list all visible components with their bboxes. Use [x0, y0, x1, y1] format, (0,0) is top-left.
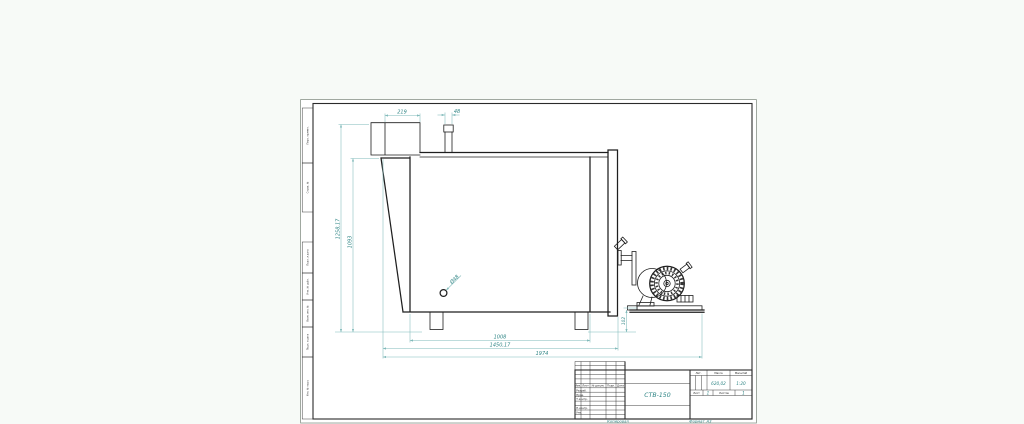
dim-nozzle-width: 48 [454, 109, 460, 115]
dim-overall-height: 1258,17 [335, 218, 341, 239]
tb-mass-value: 620,02 [711, 381, 726, 386]
tb-podp: Подп. [607, 384, 615, 388]
tb-utv: Утв. [576, 411, 582, 415]
tb-tkontr: Т.контр. [576, 397, 587, 401]
tb-list: Лист [582, 384, 589, 388]
footer-format-value: А3 [705, 418, 712, 423]
margin-label: Взам. инв. № [306, 305, 309, 322]
margin-label: Инв. № подл. [306, 380, 309, 397]
tb-scale-value: 1:20 [736, 381, 746, 386]
dim-overall-length: 1974 [536, 351, 549, 357]
tb-prov: Пров. [576, 393, 584, 397]
desktop-background: { "colors": { "paper": "#ffffff", "backg… [0, 0, 1024, 424]
footer-format-label: Формат [689, 418, 705, 423]
margin-label: Подп. и дата [306, 333, 309, 350]
tb-data: Дата [617, 384, 624, 388]
dim-tank-length: 1450,17 [490, 343, 511, 349]
tb-scale-label: Масштаб [735, 371, 748, 375]
margin-label: Инв. № дубл. [306, 278, 309, 295]
margin-label: Подп. и дата [306, 249, 309, 266]
drawing-sheet: Перв. примен. Справ. № Подп. и дата Инв.… [300, 99, 757, 424]
document-name: СТВ-150 [644, 392, 670, 399]
tb-nkontr: Н.контр. [576, 406, 588, 410]
tb-sheets-value: 1 [742, 390, 745, 395]
tb-doc: № докум. [592, 385, 605, 388]
tb-lit-label: Лит. [696, 371, 702, 375]
dim-body-height: 1093 [347, 236, 353, 249]
margin-label: Перв. примен. [306, 126, 309, 144]
tb-mass-label: Масса [714, 371, 723, 375]
sheet-paper [301, 100, 757, 423]
tb-sheet-label: Лист [693, 391, 700, 395]
margin-label: Справ. № [306, 181, 309, 193]
tb-sheets-label: Листов [719, 391, 729, 395]
dim-base-height: 102 [621, 317, 627, 325]
dim-body-length: 1008 [494, 335, 507, 341]
tb-izm: Изм. [575, 384, 581, 388]
footer-copied: Копировал [607, 418, 629, 423]
tb-sheet-value: 1 [707, 390, 710, 395]
dim-top-box-width: 219 [397, 109, 407, 115]
tb-razrab: Разраб. [576, 388, 586, 392]
